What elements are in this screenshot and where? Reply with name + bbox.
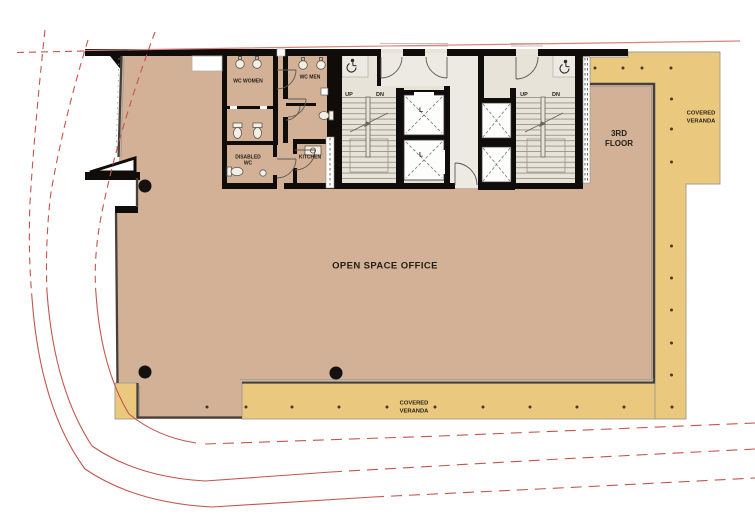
stair-dn-label-left: DN (376, 92, 384, 98)
electrical-box (321, 88, 328, 95)
covered-veranda-bottom-label-line1: COVERED (400, 401, 429, 407)
sink-icon (299, 61, 308, 70)
floor-label-line2: FLOOR (605, 139, 633, 148)
elevator-door-1 (414, 92, 434, 96)
floor-plan-document: OPEN SPACE OFFICE 3RD FLOOR COVERED VERA… (0, 0, 755, 526)
duct-strip-right (583, 57, 590, 183)
covered-veranda-right-label-line2: VERANDA (687, 119, 716, 125)
stairs-left (342, 97, 396, 183)
covered-veranda-bottom-label-line2: VERANDA (400, 409, 429, 415)
covered-veranda-bottom (242, 383, 655, 419)
entrance-recess (192, 56, 222, 71)
wc-women-label: WC WOMEN (233, 79, 263, 85)
corridor (448, 53, 480, 188)
elevator-door-2 (442, 150, 446, 174)
covered-veranda-right-label-line1: COVERED (687, 111, 716, 117)
floor-label-line1: 3RD (611, 129, 627, 138)
sink-icon (236, 60, 245, 69)
stairs-right (515, 97, 575, 183)
sink-icon (253, 60, 262, 69)
column-dot (330, 367, 343, 380)
stair-up-label-right: UP (520, 92, 528, 98)
lift-label-1: L (419, 107, 423, 114)
stair-up-label-left: UP (345, 92, 353, 98)
wc-men-label: WC MEN (300, 75, 321, 81)
sink-icon (317, 61, 326, 70)
stair-rail-left (366, 97, 370, 157)
open-space-office-label: OPEN SPACE OFFICE (332, 261, 438, 272)
toilet-icon (329, 111, 334, 120)
stair-rail-right (541, 97, 545, 157)
disabled-wc-label-line2: WC (244, 161, 253, 167)
top-wall-window (277, 49, 285, 56)
accessible-wc-left (342, 53, 368, 77)
covered-veranda-corner (115, 383, 137, 419)
sink-icon (260, 170, 266, 176)
column-dot (139, 180, 152, 193)
kitchen-label: KITCHEN (299, 155, 322, 161)
toilet-icon (253, 123, 262, 128)
lift-label-2: L (419, 152, 423, 159)
floor-plan-svg: OPEN SPACE OFFICE 3RD FLOOR COVERED VERA… (0, 0, 755, 526)
column-dot (139, 366, 152, 379)
toilet-icon (233, 123, 242, 128)
stair-dn-label-right: DN (552, 92, 560, 98)
entrance-vestibule (379, 53, 448, 86)
